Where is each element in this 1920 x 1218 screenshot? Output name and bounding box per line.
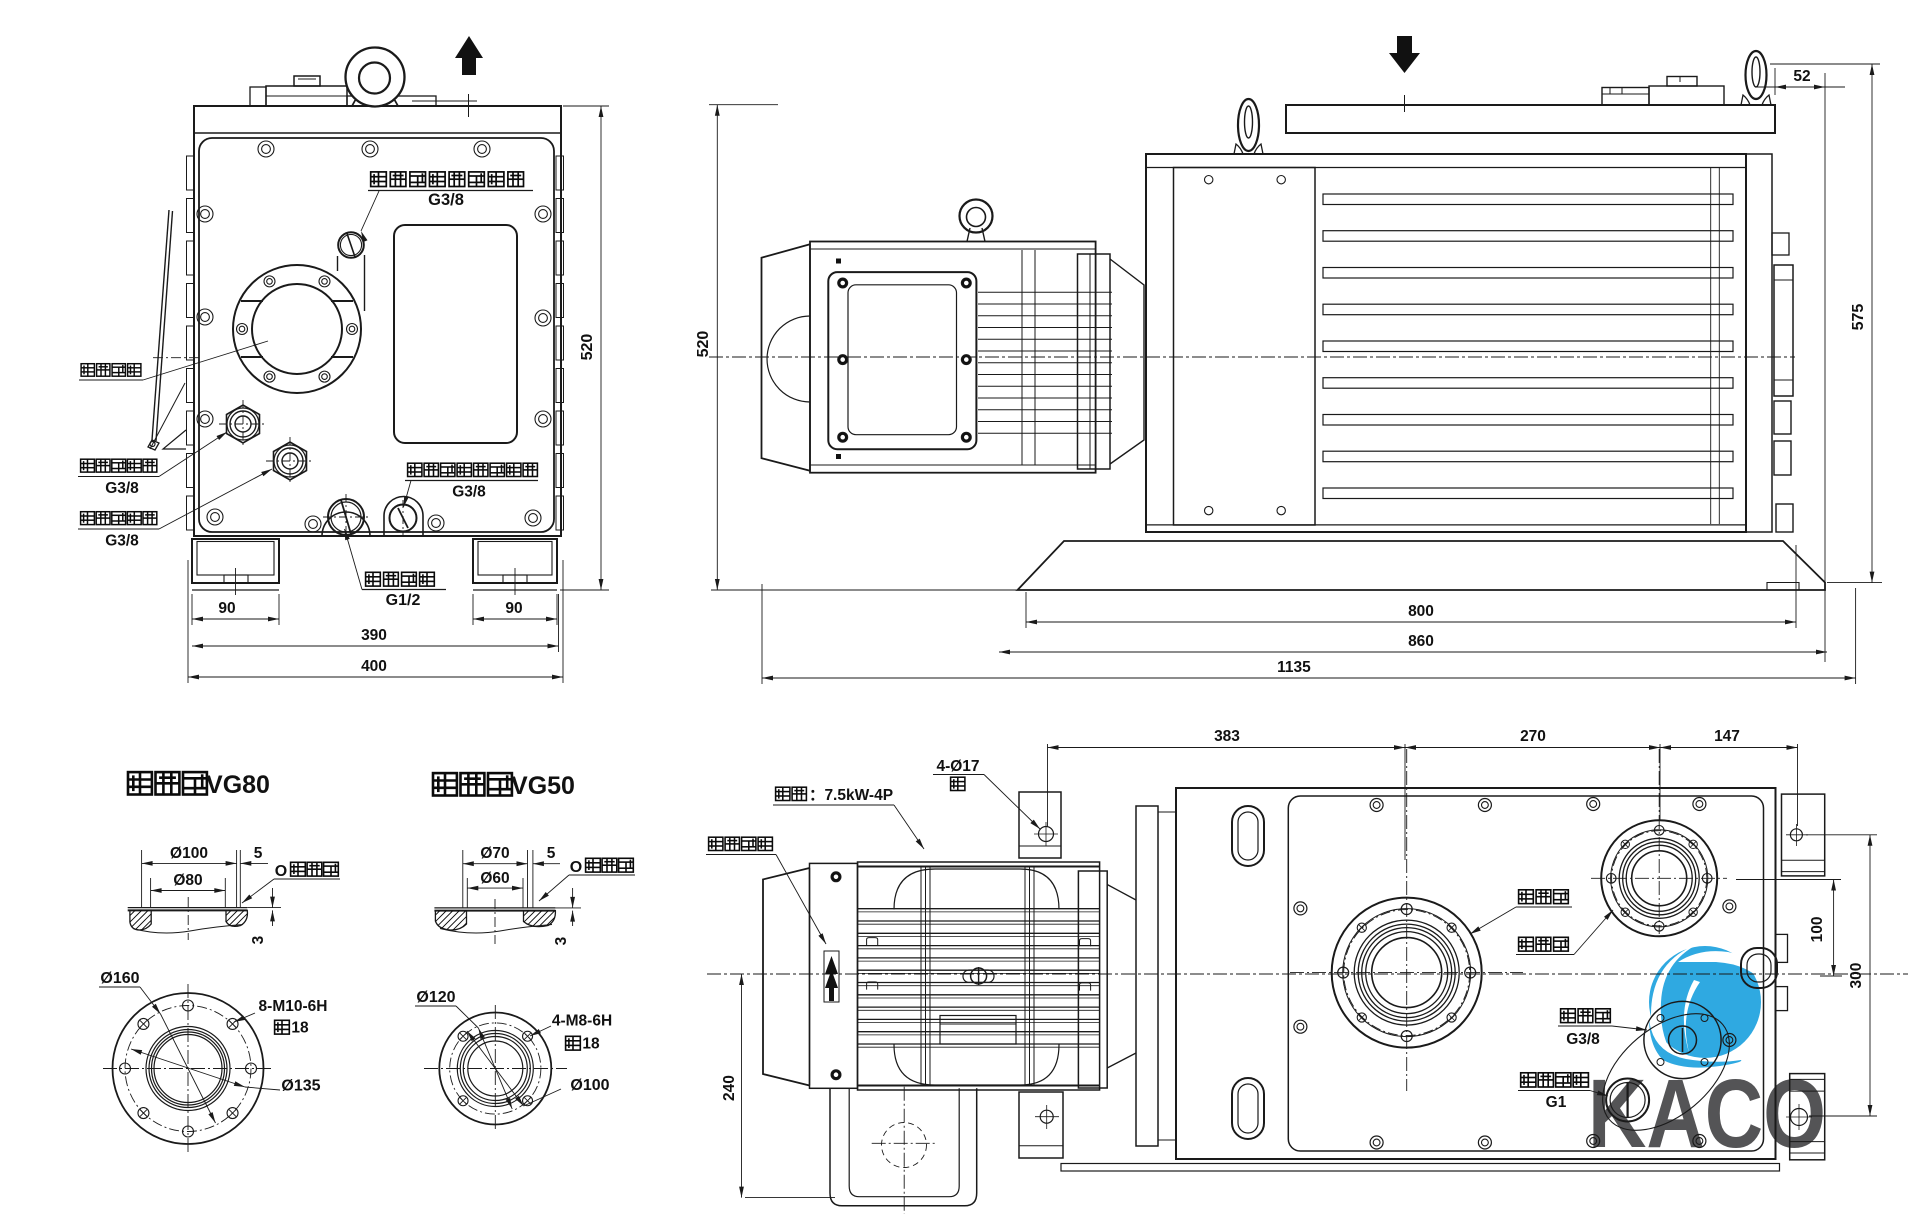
svg-text:520: 520 bbox=[695, 331, 712, 358]
svg-text:90: 90 bbox=[218, 600, 235, 617]
svg-text:5: 5 bbox=[254, 845, 263, 862]
svg-text:100: 100 bbox=[1809, 916, 1826, 942]
svg-text:575: 575 bbox=[1850, 304, 1867, 331]
svg-text:G1: G1 bbox=[1546, 1094, 1567, 1111]
svg-text:Ø60: Ø60 bbox=[480, 870, 509, 887]
svg-text:G3/8: G3/8 bbox=[105, 533, 139, 550]
svg-text:240: 240 bbox=[721, 1075, 738, 1101]
svg-text:400: 400 bbox=[361, 658, 387, 675]
svg-text:G3/8: G3/8 bbox=[1566, 1031, 1600, 1048]
svg-text:52: 52 bbox=[1793, 68, 1810, 85]
svg-text:VG50: VG50 bbox=[511, 772, 575, 800]
svg-text:Ø135: Ø135 bbox=[281, 1078, 320, 1095]
svg-text:4-Ø17: 4-Ø17 bbox=[936, 758, 979, 775]
svg-text:G3/8: G3/8 bbox=[452, 484, 486, 501]
svg-text:：7.5kW-4P: ：7.5kW-4P bbox=[809, 787, 893, 804]
svg-text:1135: 1135 bbox=[1277, 659, 1311, 676]
svg-text:300: 300 bbox=[1848, 963, 1865, 989]
svg-text:3: 3 bbox=[553, 936, 570, 945]
svg-text:G3/8: G3/8 bbox=[105, 480, 139, 497]
svg-text:147: 147 bbox=[1714, 728, 1740, 745]
svg-text:Ø100: Ø100 bbox=[170, 845, 208, 862]
svg-text:G3/8: G3/8 bbox=[428, 191, 464, 209]
svg-text:O: O bbox=[275, 863, 287, 880]
svg-text:383: 383 bbox=[1214, 728, 1240, 745]
svg-text:8-M10-6H: 8-M10-6H bbox=[259, 998, 328, 1015]
svg-text:18: 18 bbox=[582, 1036, 600, 1053]
svg-text:4-M8-6H: 4-M8-6H bbox=[552, 1013, 612, 1030]
svg-text:800: 800 bbox=[1408, 603, 1434, 620]
svg-text:G1/2: G1/2 bbox=[386, 592, 421, 609]
svg-text:390: 390 bbox=[361, 627, 387, 644]
svg-text:270: 270 bbox=[1520, 728, 1546, 745]
svg-text:520: 520 bbox=[579, 334, 596, 361]
svg-text:Ø70: Ø70 bbox=[480, 845, 509, 862]
svg-text:Ø80: Ø80 bbox=[173, 872, 202, 889]
svg-text:Ø120: Ø120 bbox=[416, 989, 455, 1006]
svg-text:O: O bbox=[570, 859, 582, 876]
svg-text:90: 90 bbox=[505, 600, 522, 617]
svg-text:Ø100: Ø100 bbox=[570, 1077, 609, 1094]
svg-text:VG80: VG80 bbox=[206, 771, 270, 799]
svg-text:860: 860 bbox=[1408, 633, 1434, 650]
svg-text:18: 18 bbox=[291, 1020, 309, 1037]
svg-text:3: 3 bbox=[250, 935, 267, 944]
svg-text:Ø160: Ø160 bbox=[100, 970, 139, 987]
svg-text:5: 5 bbox=[547, 845, 556, 862]
